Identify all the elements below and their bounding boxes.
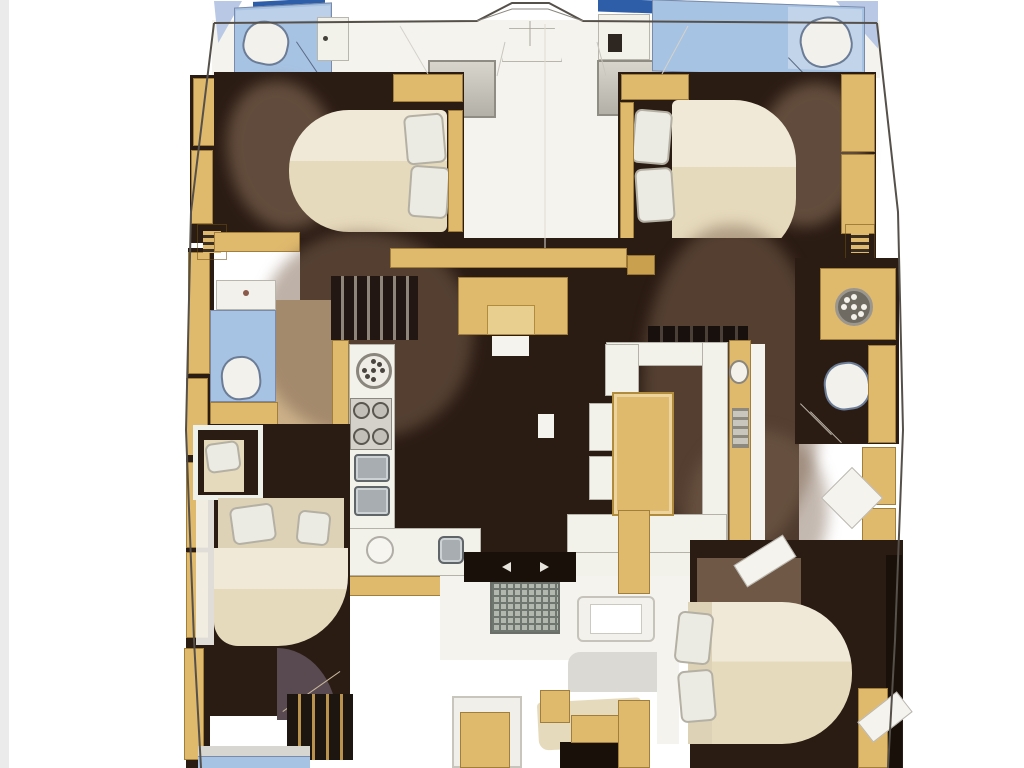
port-bed-pillow-2 [407, 165, 451, 220]
salon-door-band [464, 552, 576, 582]
starboard-aft-pillow-1 [673, 610, 714, 665]
salon-floor-hatch [538, 414, 554, 438]
catamaran-floorplan [0, 0, 1024, 768]
port-head-door-panel [317, 17, 349, 61]
anchor-hatch [502, 28, 562, 62]
burner-icon-2 [372, 402, 389, 419]
port-wardrobe-3 [188, 252, 210, 374]
port-aft-seat-pillow [204, 440, 242, 474]
starboard-wardrobe-1 [841, 74, 875, 152]
starboard-aft-frame-1 [618, 510, 650, 594]
port-aft-head-shelf [198, 746, 310, 756]
basin-drain-icon [243, 290, 249, 296]
page-edge-strip [0, 0, 9, 768]
starboard-aft-frame-2 [618, 700, 650, 768]
port-aft-pillow-2 [295, 509, 331, 546]
sideboard-locker [732, 408, 749, 448]
burner-icon-4 [372, 428, 389, 445]
sink-strainer-icon [371, 368, 376, 373]
port-cabin-foot-shelf [214, 232, 300, 252]
sink-dots-icon [851, 304, 857, 310]
port-bed-headboard [448, 110, 463, 232]
starboard-aft-bed [712, 602, 852, 744]
salon-front-cabinet-top [487, 305, 535, 335]
starboard-wardrobe-3 [868, 345, 896, 443]
port-wardrobe-2 [191, 150, 213, 224]
port-mid-cabinet [210, 402, 278, 426]
door-knob-icon [323, 36, 328, 41]
starboard-bed-pillow-1 [631, 108, 674, 165]
cockpit-door-leaf [460, 712, 510, 768]
starboard-hull-vent-box [845, 224, 875, 260]
galley-sink-basin-2 [354, 486, 390, 516]
cockpit-frame-tan-1 [540, 690, 570, 723]
starboard-aft-dark-strip [886, 555, 902, 768]
port-wardrobe-7 [184, 648, 204, 760]
starboard-cabin-shelf [621, 74, 689, 100]
sideboard-round-sink [729, 360, 749, 384]
dinette-walkway [751, 344, 765, 560]
cockpit-table-top [590, 604, 642, 634]
starboard-head-door-panel [598, 14, 650, 60]
burner-icon-3 [353, 428, 370, 445]
mast-beam-shelf-right [627, 255, 655, 275]
cockpit-doormat [490, 582, 560, 634]
sliding-door-arrow-right-icon [540, 562, 549, 572]
port-wardrobe-1 [193, 78, 215, 146]
sliding-door-arrow-left-icon [502, 562, 511, 572]
burner-icon-1 [353, 402, 370, 419]
galley-sink-basin-1 [354, 454, 390, 482]
starboard-aft-bed-walkway [657, 606, 679, 744]
galley-round-sink-2 [366, 536, 394, 564]
port-aft-pillow-1 [229, 502, 278, 546]
starboard-bed-pillow-2 [634, 167, 676, 224]
starboard-aft-pillow-2 [677, 669, 717, 724]
dining-table [612, 392, 674, 516]
starboard-wardrobe-2 [841, 154, 875, 234]
port-aft-head-floor [198, 756, 310, 768]
port-companionway-steps [331, 276, 418, 340]
salon-front-cabinet-step [492, 336, 529, 356]
port-aft-bed-walkway [196, 500, 214, 645]
starboard-bed-headboard [620, 102, 634, 258]
galley-appliance [438, 536, 464, 564]
port-cabin-shelf [393, 74, 463, 102]
port-bed-pillow-1 [403, 112, 447, 165]
sofa-corner-left [605, 344, 639, 396]
door-window-icon [608, 34, 622, 52]
mast-beam-shelf [390, 248, 627, 268]
cockpit-seat [568, 652, 664, 692]
